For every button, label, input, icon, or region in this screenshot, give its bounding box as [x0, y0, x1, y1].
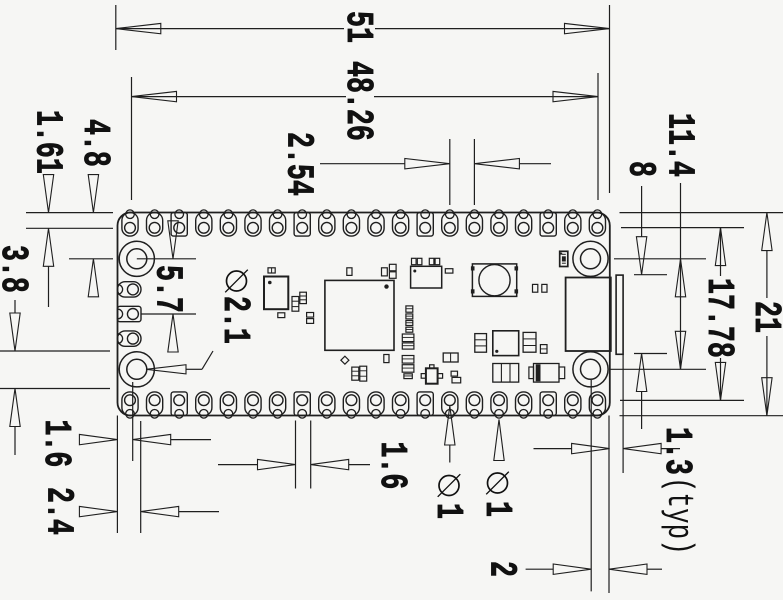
- svg-text:3.8: 3.8: [0, 245, 34, 293]
- svg-text:1: 1: [475, 501, 518, 517]
- svg-text:2.4: 2.4: [37, 487, 80, 535]
- svg-text:51: 51: [336, 11, 379, 43]
- svg-text:(typ): (typ): [658, 477, 698, 555]
- svg-text:1.6: 1.6: [34, 420, 77, 468]
- svg-text:11.4: 11.4: [658, 113, 701, 177]
- svg-text:2.54: 2.54: [277, 132, 320, 196]
- svg-text:17.78: 17.78: [697, 278, 740, 358]
- svg-text:2: 2: [480, 561, 523, 577]
- svg-text:1: 1: [426, 503, 469, 519]
- svg-text:48.26: 48.26: [336, 61, 379, 141]
- svg-text:1.61: 1.61: [26, 110, 69, 174]
- svg-text:1.3: 1.3: [655, 427, 698, 475]
- svg-text:1.6: 1.6: [370, 442, 413, 490]
- svg-text:21: 21: [744, 301, 783, 333]
- svg-text:5.7: 5.7: [146, 265, 189, 313]
- svg-text:4.8: 4.8: [73, 119, 116, 167]
- svg-text:2.1: 2.1: [213, 296, 256, 344]
- svg-text:8: 8: [619, 161, 662, 177]
